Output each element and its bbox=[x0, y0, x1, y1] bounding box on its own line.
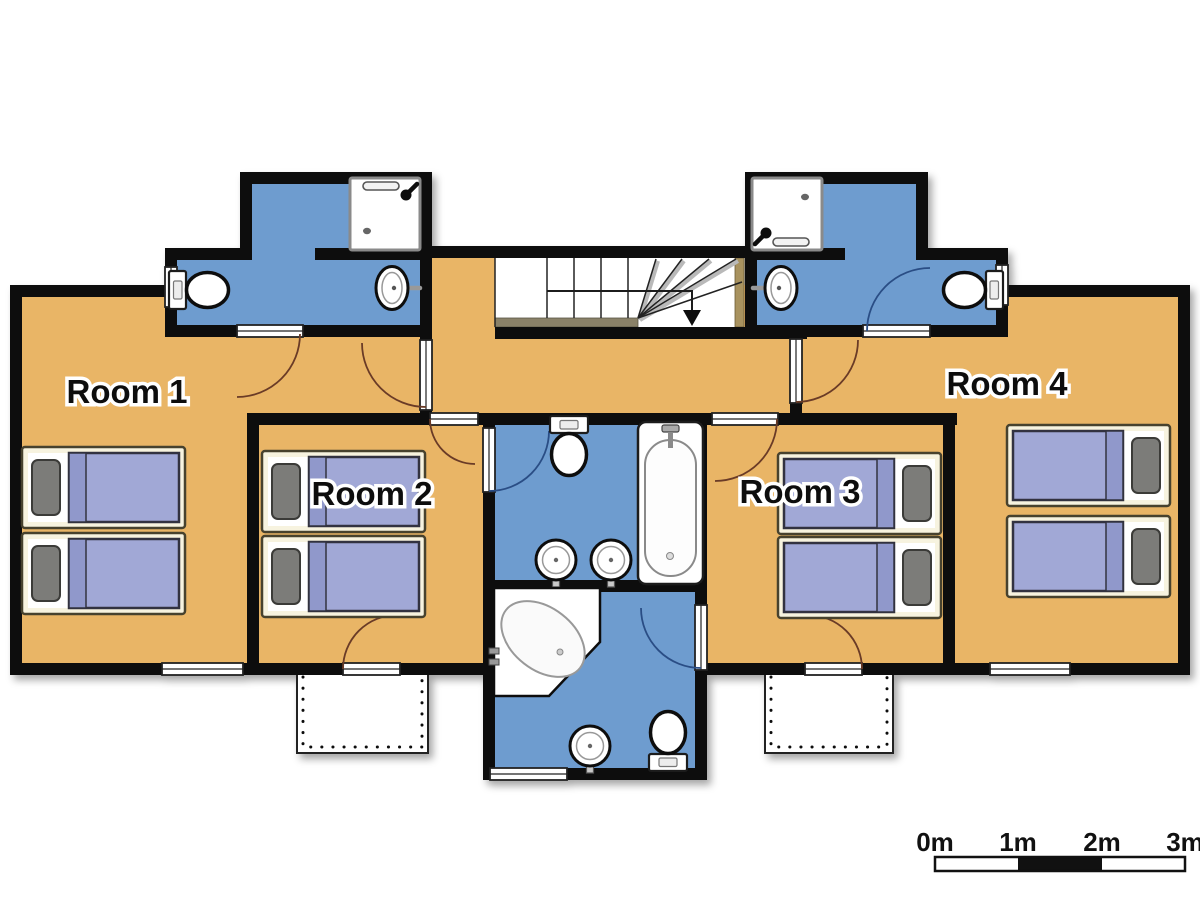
scale-bar: 0m 1m 2m 3m bbox=[916, 827, 1200, 871]
shower bbox=[752, 178, 822, 250]
balcony bbox=[297, 673, 428, 753]
window bbox=[990, 663, 1070, 675]
bed bbox=[1007, 425, 1170, 506]
staircase bbox=[495, 258, 744, 327]
room-4-label: Room 4 bbox=[946, 365, 1068, 402]
floor-plan-page: Room 1 Room 2 Room 3 Room 4 0m 1m 2m 3m bbox=[0, 0, 1200, 900]
bed bbox=[22, 533, 185, 614]
room-3-label: Room 3 bbox=[739, 473, 860, 510]
scale-tick-label: 2m bbox=[1083, 827, 1121, 857]
bed bbox=[22, 447, 185, 528]
bathtub bbox=[638, 422, 703, 584]
scale-tick-label: 0m bbox=[916, 827, 954, 857]
room-1-label: Room 1 bbox=[66, 373, 187, 410]
balcony bbox=[765, 673, 893, 753]
toilet bbox=[944, 271, 1004, 309]
floor-plan: Room 1 Room 2 Room 3 Room 4 0m 1m 2m 3m bbox=[0, 0, 1200, 900]
scale-tick-label: 1m bbox=[999, 827, 1037, 857]
stair-landing-floor bbox=[432, 258, 495, 339]
bed bbox=[262, 536, 425, 617]
window bbox=[490, 768, 567, 780]
toilet bbox=[649, 712, 687, 772]
window bbox=[162, 663, 243, 675]
scale-tick-label: 3m bbox=[1166, 827, 1200, 857]
shower bbox=[350, 178, 420, 250]
toilet bbox=[169, 271, 229, 309]
bed bbox=[1007, 516, 1170, 597]
toilet bbox=[550, 416, 588, 476]
room-2-label: Room 2 bbox=[311, 475, 432, 512]
building: Room 1 Room 2 Room 3 Room 4 bbox=[10, 172, 1190, 780]
bed bbox=[778, 537, 941, 618]
